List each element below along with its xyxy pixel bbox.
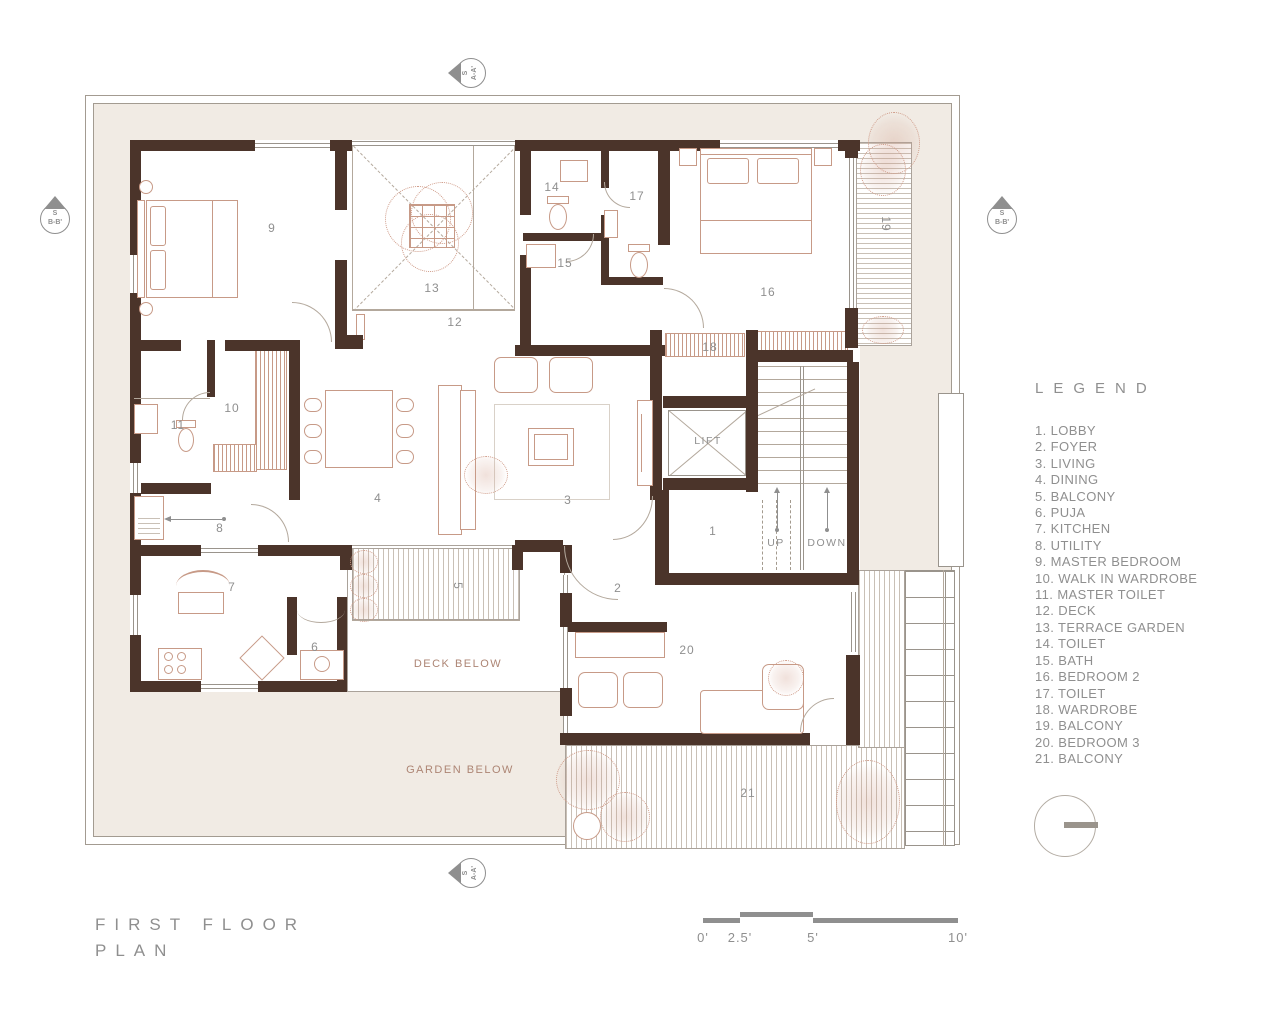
window — [133, 463, 138, 493]
room-label-12: 12 — [447, 315, 462, 329]
room-label-3: 3 — [564, 493, 572, 507]
room-label-7: 7 — [228, 580, 236, 594]
tree-planter-grid — [409, 204, 455, 248]
room-label-11: 11 — [171, 418, 185, 432]
down-arrow-head-icon — [824, 487, 830, 493]
legend-item: 14. TOILET — [1035, 636, 1197, 652]
wall — [130, 293, 141, 463]
burner — [177, 665, 186, 674]
pillow — [150, 206, 166, 246]
wall — [207, 340, 215, 397]
blanket-line — [700, 220, 812, 221]
wall — [515, 540, 563, 552]
room-label-14: 14 — [544, 180, 559, 194]
sofa-back — [438, 385, 462, 535]
sheet-title: FIRST FLOOR PLAN — [95, 912, 306, 964]
armchair — [549, 357, 593, 393]
wall — [845, 140, 858, 158]
room-label-15: 15 — [557, 256, 572, 270]
section-marker-s: S — [53, 210, 58, 219]
scale-label-0: 0' — [697, 930, 709, 945]
bed-headboard — [137, 200, 145, 298]
legend-item: 4. DINING — [1035, 472, 1197, 488]
bedside-lamp — [139, 180, 153, 194]
legend-title: LEGEND — [1035, 380, 1197, 397]
burner — [164, 652, 173, 661]
dining-chair — [396, 424, 414, 438]
scale-bar-segment — [703, 918, 740, 923]
scale-bar-segment — [740, 912, 813, 917]
window — [851, 592, 856, 652]
burner — [177, 652, 186, 661]
wall — [601, 277, 663, 285]
arrow-head-icon — [164, 516, 171, 522]
legend-item: 20. BEDROOM 3 — [1035, 735, 1197, 751]
window — [849, 158, 854, 308]
legend-item: 11. MASTER TOILET — [1035, 587, 1197, 603]
wall — [335, 150, 347, 210]
utility-sink-grill — [138, 518, 160, 536]
wall — [655, 573, 859, 585]
dining-chair — [304, 450, 322, 464]
up-label: UP — [767, 537, 785, 549]
wall — [845, 308, 858, 348]
door-swing-arrow — [170, 519, 222, 520]
plant — [836, 760, 900, 844]
wall — [520, 255, 531, 355]
section-marker-right: SB-B' — [985, 196, 1019, 234]
armchair — [578, 672, 618, 708]
wall — [335, 260, 347, 346]
wall — [335, 335, 363, 349]
wall — [565, 622, 667, 632]
room-label-16: 16 — [760, 285, 775, 299]
legend-item: 3. LIVING — [1035, 456, 1197, 472]
section-marker-top: SA-A' — [448, 56, 486, 90]
window — [133, 595, 138, 635]
wall — [658, 145, 670, 245]
shrine-deity — [314, 656, 330, 672]
railing — [352, 141, 515, 146]
puja-arch — [297, 597, 345, 623]
wc-bowl — [549, 204, 567, 230]
scale-label-2-5: 2.5' — [728, 930, 753, 945]
section-marker-s: S — [1000, 210, 1005, 219]
section-marker-label: A-A' — [471, 866, 480, 880]
section-marker-s: S — [462, 871, 471, 876]
scale-label-5: 5' — [807, 930, 819, 945]
tv-line — [641, 414, 642, 472]
plant — [862, 316, 904, 344]
up-arrow-dot — [775, 528, 779, 532]
site-notch — [938, 393, 964, 567]
dining-chair — [304, 424, 322, 438]
washbasin — [134, 404, 158, 434]
legend-items: 1. LOBBY 2. FOYER 3. LIVING 4. DINING 5.… — [1035, 423, 1197, 768]
desk — [575, 632, 665, 658]
legend-item: 9. MASTER BEDROOM — [1035, 554, 1197, 570]
section-marker-label: B-B' — [995, 219, 1009, 228]
armchair — [623, 672, 663, 708]
bedside-table — [679, 148, 697, 166]
wall — [655, 490, 669, 585]
balcony-21-side-deck — [858, 570, 905, 748]
room-label-21: 21 — [740, 786, 755, 800]
pergola-strip — [905, 570, 955, 846]
room-label-20: 20 — [679, 643, 694, 657]
legend-item: 13. TERRACE GARDEN — [1035, 620, 1197, 636]
scale-bar-segment — [813, 918, 958, 923]
plant — [350, 574, 378, 598]
down-arrow-dot — [825, 528, 829, 532]
room-label-13: 13 — [424, 281, 439, 295]
wall — [287, 597, 297, 655]
room-label-18: 18 — [702, 340, 717, 354]
wall — [560, 593, 572, 627]
pergola-rail-line — [943, 570, 946, 846]
wall — [130, 140, 255, 151]
wall — [141, 681, 201, 692]
wall — [846, 655, 860, 745]
burner — [164, 665, 173, 674]
wc-bowl — [630, 252, 648, 278]
wall — [603, 140, 665, 151]
wardrobe-10-hatch — [255, 348, 287, 470]
legend-item: 2. FOYER — [1035, 439, 1197, 455]
legend-item: 10. WALK IN WARDROBE — [1035, 571, 1197, 587]
section-marker-bottom: SA-A' — [448, 856, 486, 890]
wall — [258, 681, 288, 692]
window — [563, 575, 568, 593]
pillow — [757, 158, 799, 184]
blanket-line — [212, 201, 213, 297]
legend-item: 8. UTILITY — [1035, 538, 1197, 554]
room-label-6: 6 — [311, 640, 319, 654]
section-marker-label: A-A' — [471, 66, 480, 80]
legend-item: 21. BALCONY — [1035, 751, 1197, 767]
down-arrow-line — [827, 492, 828, 528]
legend-item: 18. WARDROBE — [1035, 702, 1197, 718]
wall — [746, 350, 853, 362]
washbasin — [526, 244, 556, 268]
plant — [464, 456, 508, 494]
deck-line — [352, 620, 520, 621]
wall — [663, 396, 746, 408]
legend-item: 12. DECK — [1035, 603, 1197, 619]
plant — [600, 792, 650, 842]
plant — [768, 660, 804, 696]
orientation-bar — [1064, 822, 1098, 828]
window — [563, 716, 568, 733]
deck-12-line — [352, 310, 515, 311]
legend-item: 16. BEDROOM 2 — [1035, 669, 1197, 685]
washbasin — [604, 210, 618, 238]
dining-chair — [396, 450, 414, 464]
floor-plan-sheet: SA-A' SA-A' SB-B' SB-B' — [0, 0, 1280, 1024]
stair-dashed-tread — [762, 500, 763, 570]
sheet-title-line2: PLAN — [95, 938, 306, 964]
legend-item: 15. BATH — [1035, 653, 1197, 669]
garden-below-label: GARDEN BELOW — [406, 764, 514, 776]
round-planter — [573, 812, 601, 840]
armchair — [494, 357, 538, 393]
room-label-10: 10 — [224, 401, 239, 415]
wall — [663, 478, 746, 490]
room-label-4: 4 — [374, 491, 382, 505]
wall — [560, 733, 810, 745]
wall — [520, 140, 531, 215]
wall — [560, 688, 572, 716]
stair-stringer — [800, 366, 804, 570]
tree — [385, 182, 477, 274]
bed-headboard — [700, 148, 812, 155]
legend-item: 5. BALCONY — [1035, 489, 1197, 505]
up-arrow-head-icon — [774, 487, 780, 493]
plant — [868, 112, 920, 174]
room-label-5: 5 — [451, 582, 465, 590]
dining-chair — [396, 398, 414, 412]
dining-table — [325, 390, 393, 468]
washbasin — [560, 160, 588, 182]
legend-item: 6. PUJA — [1035, 505, 1197, 521]
wc-tank — [547, 196, 569, 204]
section-marker-label: B-B' — [48, 219, 62, 228]
window — [255, 143, 330, 148]
window — [563, 627, 568, 688]
wall — [515, 345, 665, 356]
bedside-table — [814, 148, 832, 166]
wall — [141, 340, 181, 351]
wall — [847, 362, 859, 585]
kitchen-island — [178, 592, 224, 614]
section-marker-left: SB-B' — [38, 196, 72, 234]
pillow — [707, 158, 749, 184]
room-label-1: 1 — [709, 524, 717, 538]
wall — [141, 545, 201, 556]
sheet-title-line1: FIRST FLOOR — [95, 912, 306, 938]
dining-chair — [304, 398, 322, 412]
room-label-9: 9 — [268, 221, 276, 235]
legend-item: 7. KITCHEN — [1035, 521, 1197, 537]
down-label: DOWN — [807, 537, 846, 549]
plant — [350, 598, 378, 622]
section-marker-s: S — [462, 71, 471, 76]
legend: LEGEND 1. LOBBY 2. FOYER 3. LIVING 4. DI… — [1035, 380, 1197, 768]
window — [201, 684, 258, 689]
tv-console — [637, 400, 653, 486]
bedside-lamp — [139, 302, 153, 316]
scale-label-10: 10' — [948, 930, 968, 945]
wc-tank — [628, 244, 650, 252]
coffee-table-inner — [534, 434, 568, 460]
wardrobe-10-hatch — [213, 444, 257, 472]
room-label-2: 2 — [614, 581, 622, 595]
wall — [130, 635, 141, 692]
lift-label: LIFT — [694, 435, 722, 447]
wall — [289, 340, 300, 500]
pillow — [150, 250, 166, 290]
up-arrow-line — [777, 492, 778, 528]
wall — [258, 545, 300, 556]
wall — [141, 483, 211, 494]
legend-item: 1. LOBBY — [1035, 423, 1197, 439]
stair-dashed-tread — [790, 500, 791, 570]
legend-item: 19. BALCONY — [1035, 718, 1197, 734]
room-label-8: 8 — [216, 521, 224, 535]
room-label-17: 17 — [629, 189, 644, 203]
room-label-19: 19 — [879, 216, 893, 231]
window — [201, 548, 258, 553]
plant — [350, 550, 378, 574]
deck-below-label: DECK BELOW — [414, 658, 502, 670]
legend-item: 17. TOILET — [1035, 686, 1197, 702]
